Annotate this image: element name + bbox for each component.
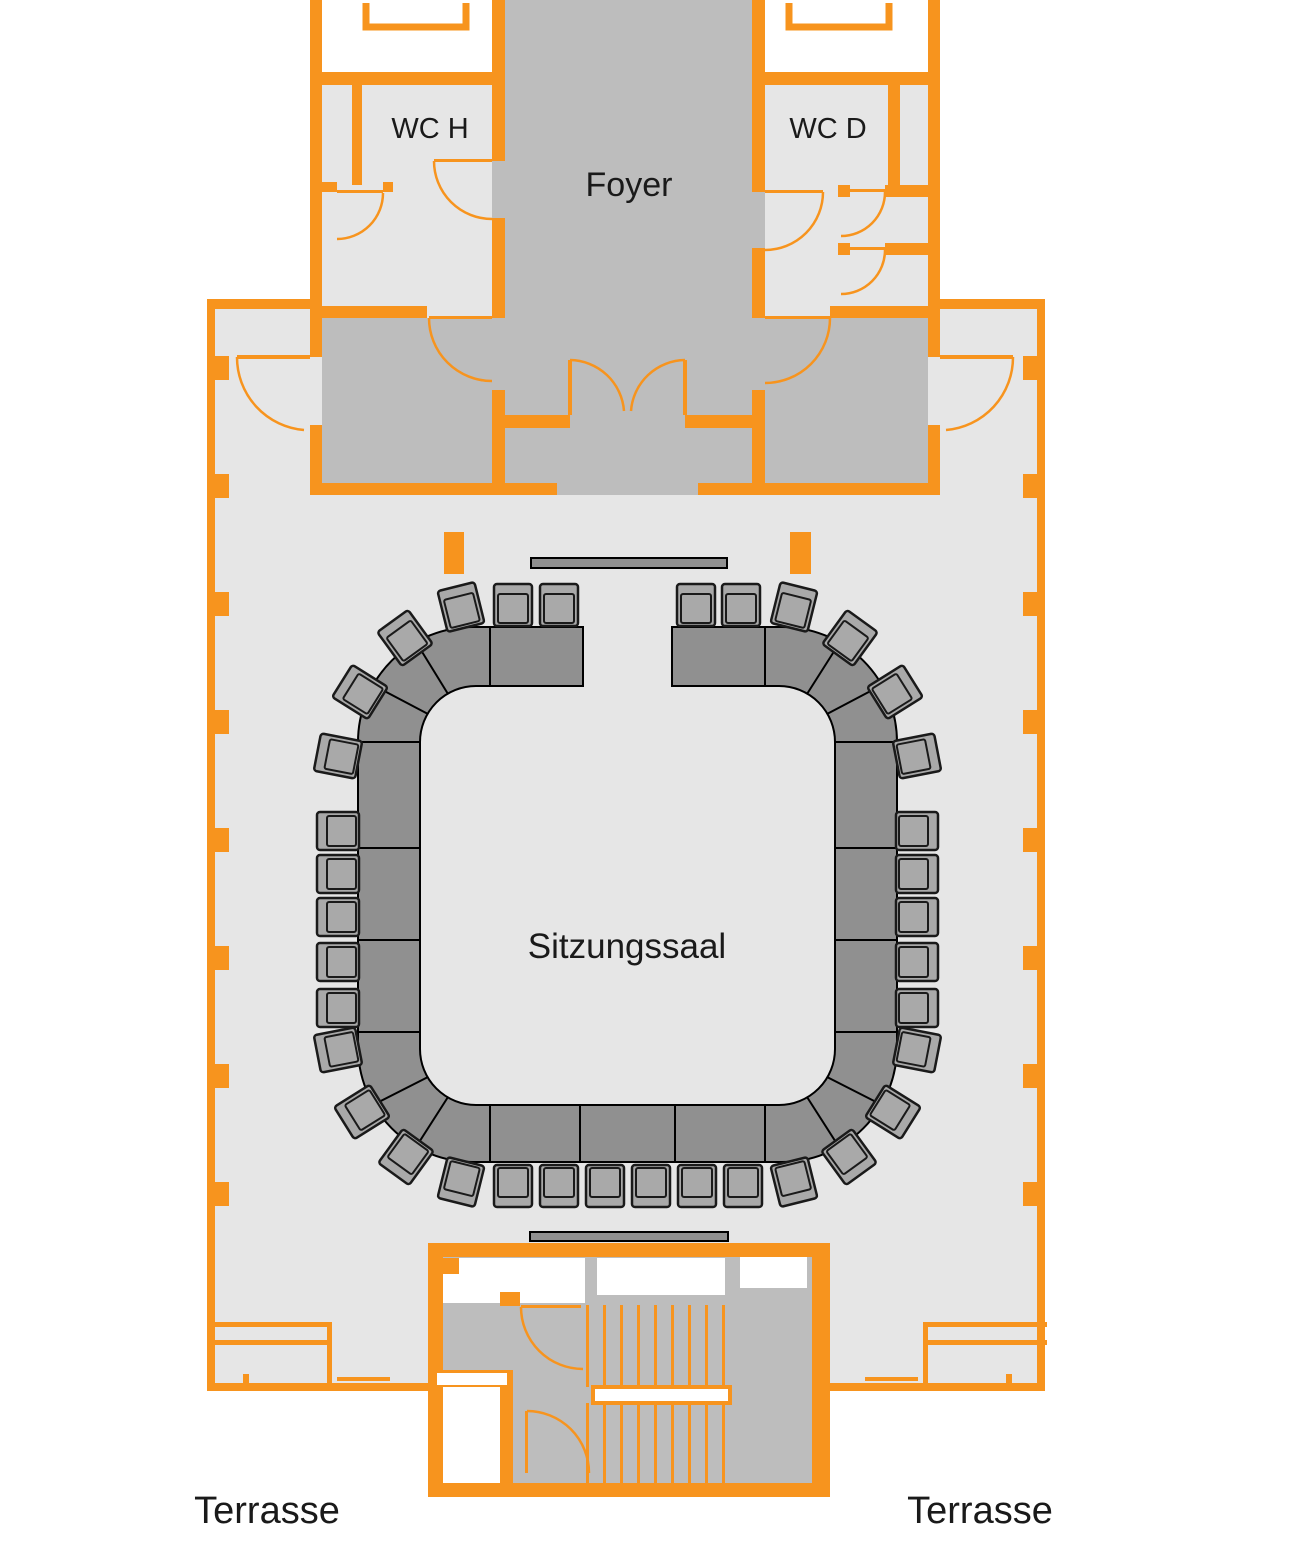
wall-segment [888, 85, 900, 185]
chair [314, 733, 362, 778]
pillar-right [790, 532, 811, 574]
door-leaf [237, 355, 310, 359]
door-leaf [337, 190, 383, 193]
chair [632, 1165, 670, 1207]
wall-segment [492, 390, 505, 483]
window-pier [1023, 710, 1045, 734]
chair [586, 1165, 624, 1207]
wall-segment [928, 0, 940, 357]
chair [896, 898, 938, 936]
wall-segment [830, 1383, 1045, 1391]
chair [494, 584, 532, 626]
window-pier [207, 828, 229, 852]
wall-segment [940, 299, 1045, 309]
door-leaf [841, 247, 885, 250]
window-pier [1023, 1064, 1045, 1088]
window-pier [1023, 474, 1045, 498]
wall-segment [207, 299, 310, 309]
wall-segment [685, 415, 752, 428]
label-wc-d: WC D [789, 113, 866, 145]
pillar-left [444, 532, 464, 574]
window-pier [207, 710, 229, 734]
window-pier [1023, 356, 1045, 380]
wall-segment [885, 243, 940, 255]
chair [437, 1157, 484, 1207]
chair [540, 584, 578, 626]
wall-segment [698, 483, 940, 495]
wall-segment [500, 1292, 520, 1306]
chair [677, 584, 715, 626]
wall-segment [830, 306, 928, 318]
door-leaf [525, 1411, 528, 1473]
wall-segment [443, 1258, 459, 1274]
chair [770, 582, 817, 632]
elevator [428, 1370, 513, 1497]
floor-plan-page: WC H WC D Foyer Sitzungssaal Terrasse Te… [0, 0, 1308, 1553]
chair [896, 855, 938, 893]
chair [314, 1027, 362, 1072]
chair [437, 582, 484, 632]
door-leaf [765, 316, 830, 319]
wall-segment [505, 415, 570, 428]
stair-handrail [593, 1387, 730, 1403]
wall-segment [310, 0, 322, 357]
window-pier [207, 1182, 229, 1206]
window-pier [207, 474, 229, 498]
window-pier [1023, 946, 1045, 970]
window-pier [207, 946, 229, 970]
chair [317, 812, 359, 850]
wall-segment [752, 72, 940, 85]
chair [494, 1165, 532, 1207]
vestibule-right-floor [765, 318, 928, 495]
wall-segment [352, 85, 362, 185]
door-leaf [568, 360, 572, 415]
wall-segment [310, 182, 337, 192]
window-pier [1023, 828, 1045, 852]
wall-segment [492, 218, 505, 318]
chair [893, 1027, 941, 1072]
stair-landing-right [740, 1257, 807, 1288]
chair [317, 943, 359, 981]
wall-segment [752, 248, 765, 318]
label-terrasse-right: Terrasse [907, 1490, 1053, 1532]
window-pier [207, 1064, 229, 1088]
label-wc-h: WC H [391, 113, 468, 145]
wall-segment [752, 0, 765, 192]
label-foyer: Foyer [586, 166, 673, 204]
wall-segment [310, 306, 427, 318]
door-leaf [841, 189, 885, 192]
wall-segment [383, 182, 393, 192]
chair [896, 943, 938, 981]
chair [540, 1165, 578, 1207]
chair [770, 1157, 817, 1207]
label-sitzungssaal: Sitzungssaal [528, 927, 726, 966]
chair [896, 812, 938, 850]
chair [317, 855, 359, 893]
wall-segment [752, 390, 765, 483]
window-pier [207, 356, 229, 380]
door-leaf [429, 316, 492, 319]
podium-top [531, 558, 727, 568]
wall-segment [885, 185, 940, 197]
door-leaf [521, 1305, 581, 1308]
chair [317, 989, 359, 1027]
podium-bottom [530, 1232, 728, 1241]
chair [317, 898, 359, 936]
chair [893, 733, 941, 778]
stairwell [428, 1243, 830, 1497]
door-leaf [940, 355, 1013, 359]
chair [678, 1165, 716, 1207]
door-leaf [765, 190, 823, 193]
window-pier [1023, 592, 1045, 616]
wall-segment [310, 72, 505, 85]
window-pier [1023, 1182, 1045, 1206]
stair-landing-center [597, 1258, 725, 1295]
floor-plan-drawing: WC H WC D Foyer Sitzungssaal Terrasse Te… [0, 0, 1308, 1553]
window-pier [207, 592, 229, 616]
vestibule-left-floor [322, 318, 492, 495]
chair [722, 584, 760, 626]
door-leaf [683, 360, 687, 415]
wall-segment [310, 483, 557, 495]
door-leaf [434, 159, 492, 162]
label-terrasse-left: Terrasse [194, 1490, 340, 1532]
wall-segment [207, 1383, 430, 1391]
chair [896, 989, 938, 1027]
chair [724, 1165, 762, 1207]
